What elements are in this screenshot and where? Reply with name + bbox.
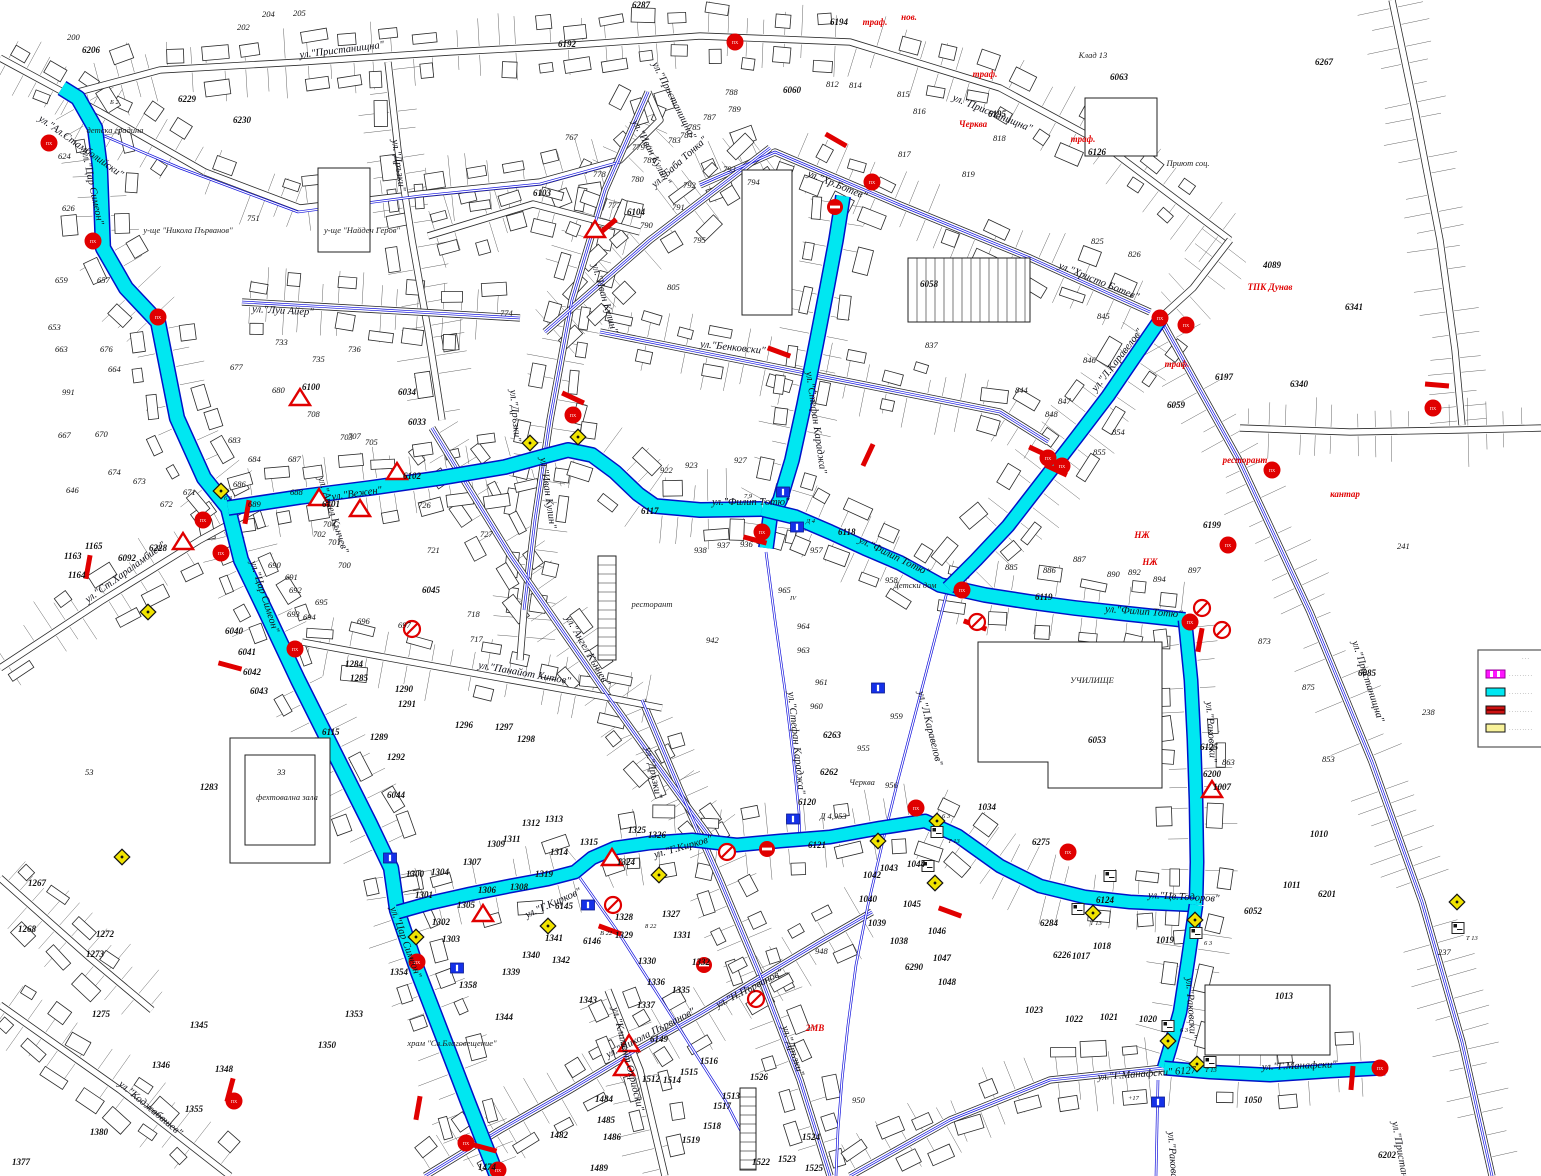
parcel-number: 961 (815, 677, 828, 687)
parcel-building (568, 370, 579, 394)
parcel-number: 733 (275, 337, 288, 347)
parcel-building (1170, 869, 1180, 886)
parcel-building (502, 62, 517, 79)
hydrant-plate-icon (872, 683, 885, 693)
parcel-building (880, 399, 894, 412)
parcel-number: 1268 (18, 924, 37, 934)
parcel-number: 853 (1322, 754, 1335, 764)
parcel-building (741, 58, 755, 71)
parcel-number: 6287 (632, 0, 651, 10)
parcel-number: 721 (427, 545, 440, 555)
parcel-number: 6275 (1032, 837, 1051, 847)
no-stopping-icon (605, 897, 621, 913)
parcel-number: 6052 (1244, 906, 1263, 916)
parcel-number: 886 (1043, 565, 1057, 575)
parcel-number: 1485 (597, 1115, 616, 1125)
facility-label-red: НЖ (1133, 530, 1150, 540)
parcel-number: 6229 (178, 94, 197, 104)
parcel-building (401, 328, 424, 346)
parcel-number: 6201 (1318, 889, 1336, 899)
fire-hydrant-icon: ПХ (1054, 458, 1071, 475)
parcel-number: 1275 (92, 1009, 111, 1019)
parcel-building (980, 388, 1008, 404)
parcel-building (1132, 581, 1146, 593)
parcel-number: 814 (849, 80, 863, 90)
fire-hydrant-icon: ПХ (1152, 310, 1169, 327)
parcel-building (179, 324, 196, 341)
parcel-building (1035, 625, 1050, 639)
parcel-building (892, 839, 907, 854)
parcel-number: 33 (276, 767, 286, 777)
parcel-number: 1017 (1072, 951, 1091, 961)
parcel-building (415, 371, 434, 398)
parcel-number: 818 (993, 133, 1007, 143)
parcel-building (635, 349, 652, 364)
parcel-number: 956 (885, 780, 899, 790)
parcel-number: 1048 (938, 977, 957, 987)
parcel-number: 1516 (700, 1056, 719, 1066)
large-building (1205, 985, 1330, 1055)
facility-label: Приют соц. (1165, 158, 1209, 168)
fire-hydrant-label: ПХ (759, 530, 766, 535)
cadastral-water-network-map: ПХПХПХПХПХПХПХПХПХПХПХПХПХПХПХПХПХПХПХПХ… (0, 0, 1541, 1176)
parcel-number: 1011 (1283, 880, 1301, 890)
parcel-number: 1524 (802, 1132, 821, 1142)
symbol-annotation: 8 22 (645, 923, 657, 930)
parcel-number: 1354 (390, 967, 409, 977)
parcel-number: 815 (897, 89, 910, 99)
parcel-number: 6290 (905, 962, 924, 972)
parcel-number: 847 (1058, 396, 1072, 406)
parcel-number: 673 (133, 476, 146, 486)
facility-label: Клад 13 (1078, 50, 1108, 60)
parcel-number: 1489 (590, 1163, 609, 1173)
parcel-number: 6284 (1040, 918, 1059, 928)
parcel-number: 1307 (463, 857, 482, 867)
symbol-annotation: Д 4 (805, 518, 816, 525)
parcel-number: 1525 (805, 1163, 824, 1173)
parcel-number: 205 (293, 8, 306, 18)
parcel-number: 1044 (907, 859, 926, 869)
fire-hydrant-label: ПХ (1430, 406, 1437, 411)
parcel-number: 1345 (190, 1020, 209, 1030)
fire-hydrant-label: ПХ (732, 40, 739, 45)
facility-label: фехтовална зала (256, 792, 318, 802)
parcel-number: 6121 (808, 840, 826, 850)
parcel-building (477, 433, 495, 444)
fire-hydrant-label: ПХ (46, 141, 53, 146)
parcel-building (1078, 632, 1097, 642)
symbol-annotation: 6 3 (942, 813, 951, 820)
parcel-number: 6120 (798, 797, 817, 807)
facility-label-red: кантар (1330, 489, 1360, 499)
parcel-building (371, 459, 395, 469)
parcel-number: 875 (1302, 682, 1315, 692)
parcel-number: 1302 (432, 917, 451, 927)
parcel-building (668, 12, 686, 23)
parcel-number: 1050 (1244, 1095, 1263, 1105)
parcel-number: 687 (288, 454, 302, 464)
parcel-number: 1353 (345, 1009, 364, 1019)
parcel-number: 697 (398, 620, 412, 630)
parcel-number: 789 (728, 104, 742, 114)
parcel-building (791, 863, 806, 875)
parcel-number: 726 (418, 500, 432, 510)
street-label: ул."Филип Тотю" (711, 497, 790, 508)
parcel-number: 1284 (345, 659, 364, 669)
fire-hydrant-label: ПХ (1045, 456, 1052, 461)
parcel-number: 1519 (682, 1135, 701, 1145)
parcel-number: 894 (1153, 574, 1167, 584)
parcel-number: 1042 (863, 870, 882, 880)
fire-hydrant-icon: ПХ (458, 1135, 475, 1152)
parcel-number: 6226 (1053, 950, 1072, 960)
symbol-annotation: В 22 (600, 930, 613, 937)
parcel-number: 1343 (579, 995, 598, 1005)
parcel-number: 6045 (422, 585, 441, 595)
parcel-building (1156, 807, 1172, 826)
parcel-number: 790 (640, 220, 654, 230)
parcel-number: 1330 (638, 956, 657, 966)
symbol-annotation: +17 (1128, 1095, 1140, 1102)
legend-swatch-magenta (1486, 670, 1505, 678)
fire-hydrant-label: ПХ (913, 806, 920, 811)
fire-hydrant-icon: ПХ (1220, 537, 1237, 554)
parcel-number: 53 (85, 767, 94, 777)
parcel-number: 653 (48, 322, 61, 332)
parcel-number: 1289 (370, 732, 389, 742)
parcel-number: 938 (694, 545, 708, 555)
facility-label: храм "Св.Благовещение" (406, 1038, 497, 1048)
parcel-number: 1339 (502, 967, 521, 977)
fire-hydrant-icon: ПХ (287, 641, 304, 658)
parcel-number: 1164 (68, 570, 86, 580)
parcel-number: 897 (1188, 565, 1202, 575)
parcel-number: 1019 (1156, 935, 1175, 945)
parcel-number: 1326 (648, 830, 667, 840)
parcel-building (773, 46, 791, 63)
parcel-building (374, 100, 388, 126)
parcel-number: 6058 (920, 279, 939, 289)
parcel-building (1217, 868, 1233, 890)
parcel-number: 1355 (185, 1104, 204, 1114)
parcel-number: 846 (1083, 355, 1097, 365)
parcel-number: 959 (890, 711, 904, 721)
parcel-building (412, 442, 433, 457)
symbol-annotation: Т 13 (1090, 920, 1102, 927)
parcel-number: 1290 (395, 684, 414, 694)
large-building (318, 168, 370, 252)
fire-hydrant-label: ПХ (155, 315, 162, 320)
parcel-number: 863 (1222, 757, 1235, 767)
fire-hydrant-icon: ПХ (864, 174, 881, 191)
facility-label-red: 2МВ (805, 1023, 825, 1033)
parcel-number: 1312 (522, 818, 541, 828)
no-entry-icon (759, 841, 775, 857)
parcel-number: 783 (668, 135, 681, 145)
parcel-number: 1297 (495, 722, 514, 732)
parcel-number: 727 (480, 529, 494, 539)
parcel-number: 6200 (1203, 769, 1222, 779)
parcel-number: 1040 (859, 894, 878, 904)
parcel-building (424, 171, 445, 190)
parcel-building (1051, 1047, 1076, 1057)
parcel-number: 778 (593, 169, 607, 179)
parcel-number: 1328 (615, 912, 634, 922)
no-stopping-icon (1214, 622, 1230, 638)
parcel-number: 1046 (928, 926, 947, 936)
parcel-building (670, 1102, 685, 1120)
no-stopping-icon (719, 844, 735, 860)
parcel-number: 6103 (533, 188, 552, 198)
hydrant-plate-icon (787, 814, 800, 824)
parcel-number: 676 (100, 344, 114, 354)
parcel-number: 6199 (1203, 520, 1222, 530)
facility-label: у-ще "Никола Първанов" (142, 225, 233, 235)
parcel-building (1165, 910, 1179, 926)
parcel-building (335, 313, 355, 331)
parcel-number: 1327 (662, 909, 681, 919)
parcel-building (441, 291, 462, 302)
parcel-number: 6194 (830, 17, 849, 27)
facility-label: УЧИЛИЩЕ (1070, 675, 1114, 685)
facility-label-red: ТПК Дунав (1248, 282, 1293, 292)
parcel-number: 664 (108, 364, 122, 374)
parcel-number: 1346 (152, 1060, 171, 1070)
rowhouse-strip (598, 556, 616, 660)
parcel-number: 6340 (1290, 379, 1309, 389)
facility-label-red: траф. (863, 17, 888, 27)
parcel-number: 718 (467, 609, 481, 619)
parcel-number: 1273 (86, 949, 105, 959)
parcel-number: 686 (233, 479, 247, 489)
fire-hydrant-icon: ПХ (150, 309, 167, 326)
facility-label: детска градина (87, 125, 144, 135)
parcel-number: 691 (285, 572, 298, 582)
parcel-number: 805 (667, 282, 680, 292)
parcel-number: 1335 (672, 985, 691, 995)
parcel-building (420, 63, 434, 79)
parcel-number: 1522 (752, 1157, 771, 1167)
fire-hydrant-label: ПХ (1183, 323, 1190, 328)
parcel-number: 922 (660, 465, 674, 475)
parcel-number: 1308 (510, 882, 529, 892)
parcel-number: 792 (683, 180, 697, 190)
facility-label-red: Черква (959, 119, 988, 129)
parcel-number: 1022 (1065, 1014, 1084, 1024)
parcel-number: 672 (160, 499, 174, 509)
parcel-number: 960 (810, 701, 824, 711)
parcel-building (264, 466, 289, 479)
fire-hydrant-icon: ПХ (754, 524, 771, 541)
legend-header: ··· (1522, 657, 1530, 662)
parcel-number: 1305 (457, 900, 476, 910)
parcel-number: 6119 (1035, 592, 1053, 602)
fire-hydrant-icon: ПХ (1372, 1060, 1389, 1077)
parcel-building (481, 282, 507, 296)
symbol-annotation: Т 13 (1205, 1067, 1217, 1074)
fire-hydrant-icon: ПХ (41, 135, 58, 152)
no-stopping-icon (969, 614, 985, 630)
facility-label: ресторант (631, 599, 673, 609)
parcel-building (774, 408, 788, 425)
parcel-number: 4089 (1262, 260, 1282, 270)
parcel-number: 736 (348, 344, 362, 354)
parcel-number: 1350 (318, 1040, 337, 1050)
parcel-number: 6059 (1167, 400, 1186, 410)
parcel-number: 1518 (703, 1121, 722, 1131)
parcel-number: 1514 (663, 1075, 682, 1085)
fire-hydrant-icon: ПХ (954, 582, 971, 599)
parcel-number: 202 (237, 22, 251, 32)
parcel-number: 927 (734, 455, 748, 465)
parcel-building (250, 323, 263, 334)
parcel-number: 1474 (478, 1162, 497, 1172)
fire-hydrant-icon: ПХ (1060, 844, 1077, 861)
parcel-number: 826 (1128, 249, 1142, 259)
parcel-number: 667 (58, 430, 72, 440)
symbol-annotation: Т 13 (948, 838, 960, 845)
parcel-number: 1301 (415, 890, 433, 900)
parcel-building (412, 33, 437, 45)
parcel-number: 683 (228, 435, 241, 445)
parcel-number: 6042 (243, 667, 262, 677)
parcel-number: 6041 (238, 647, 256, 657)
legend-item-label: ········· (1509, 674, 1533, 679)
parcel-number: 873 (1258, 636, 1271, 646)
parcel-building (1137, 913, 1153, 927)
parcel-building (378, 28, 397, 40)
parcel-number: 1034 (978, 802, 997, 812)
parcel-number: 845 (1097, 311, 1110, 321)
fire-hydrant-icon: ПХ (1425, 400, 1442, 417)
parcel-building (338, 276, 357, 288)
parcel-number: 1267 (28, 878, 47, 888)
parcel-number: 6126 (1088, 147, 1107, 157)
parcel-building (729, 519, 744, 541)
legend-item-label: ········· (1509, 728, 1533, 733)
parcel-number: 6100 (302, 382, 321, 392)
parcel-number: 1303 (442, 934, 461, 944)
parcel-number: 1272 (96, 929, 115, 939)
fire-hydrant-icon: ПХ (213, 545, 230, 562)
parcel-number: 787 (703, 112, 717, 122)
fire-hydrant-label: ПХ (218, 551, 225, 556)
parcel-number: 1285 (350, 673, 369, 683)
fire-hydrant-icon: ПХ (1178, 317, 1195, 334)
parcel-building (1122, 1046, 1137, 1055)
parcel-number: 1512 (642, 1074, 661, 1084)
parcel-building (536, 14, 552, 29)
parcel-building (202, 45, 230, 61)
parcel-number: 671 (183, 487, 196, 497)
parcel-number: 1013 (1275, 991, 1294, 1001)
parcel-building (811, 197, 821, 220)
parcel-number: 887 (1073, 554, 1087, 564)
parcel-building (1206, 803, 1223, 828)
parcel-building (554, 468, 570, 483)
fire-hydrant-label: ПХ (1157, 316, 1164, 321)
parcel-number: 1039 (868, 918, 887, 928)
legend: ······································· (1478, 650, 1541, 747)
parcel-number: 657 (97, 275, 111, 285)
parcel-number: 6040 (225, 626, 244, 636)
parcel-number: 1336 (647, 977, 666, 987)
manhole-icon (1204, 1057, 1216, 1068)
parcel-building (837, 295, 851, 320)
parcel-building (1058, 1095, 1079, 1111)
parcel-number: 793 (723, 164, 736, 174)
parcel-number: 1484 (595, 1094, 614, 1104)
parcel-number: 6102 (403, 471, 422, 481)
parcel-number: 6197 (1215, 372, 1234, 382)
legend-item-label: ········· (1509, 692, 1533, 697)
parcel-number: 794 (747, 177, 761, 187)
parcel-building (443, 334, 456, 350)
parcel-building (773, 375, 785, 395)
parcel-number: 674 (108, 467, 122, 477)
parcel-number: 844 (1015, 385, 1029, 395)
parcel-building (239, 43, 259, 58)
parcel-number: 1300 (406, 869, 425, 879)
parcel-number: 670 (95, 429, 109, 439)
parcel-number: 1313 (545, 814, 564, 824)
fire-hydrant-label: ПХ (959, 588, 966, 593)
parcel-number: 626 (62, 203, 76, 213)
hydrant-plate-icon (384, 853, 397, 863)
parcel-number: 6124 (1096, 895, 1115, 905)
parcel-building (125, 173, 138, 193)
parcel-number: 1340 (522, 950, 541, 960)
parcel-building (1217, 1092, 1233, 1103)
parcel-building (542, 561, 559, 577)
parcel-building (114, 213, 129, 233)
parcel-number: 1329 (615, 930, 634, 940)
parcel-number: 780 (631, 174, 645, 184)
hydrant-plate-icon (1152, 1097, 1165, 1107)
parcel-number: 816 (913, 106, 927, 116)
parcel-building (306, 628, 333, 639)
parcel-number: 751 (247, 213, 260, 223)
parcel-number: 890 (1107, 569, 1121, 579)
parcel-number: 702 (313, 529, 327, 539)
legend-swatch-cyan (1486, 688, 1505, 696)
parcel-number: 6044 (387, 790, 406, 800)
parcel-number: 6192 (558, 39, 577, 49)
parcel-number: 694 (303, 612, 317, 622)
parcel-number: 791 (672, 202, 685, 212)
parcel-building (813, 60, 833, 72)
facility-label-red: траф. (973, 69, 998, 79)
parcel-number: 688 (290, 487, 304, 497)
parcel-number: 6063 (1110, 72, 1129, 82)
parcel-number: 6263 (823, 730, 842, 740)
parcel-number: 1283 (200, 782, 219, 792)
parcel-number: 948 (815, 946, 829, 956)
parcel-number: 659 (55, 275, 69, 285)
parcel-number: 1298 (517, 734, 536, 744)
parcel-number: 1380 (90, 1127, 109, 1137)
parcel-building (204, 79, 231, 97)
parcel-building (1278, 1094, 1297, 1109)
parcel-number: 1023 (1025, 1005, 1044, 1015)
parcel-number: 965 (778, 585, 791, 595)
parcel-number: 1331 (673, 930, 691, 940)
facility-label-red: нов. (901, 12, 917, 22)
parcel-number: 6267 (1315, 57, 1334, 67)
parcel-number: 1291 (398, 699, 416, 709)
parcel-number: 6341 (1345, 302, 1363, 312)
